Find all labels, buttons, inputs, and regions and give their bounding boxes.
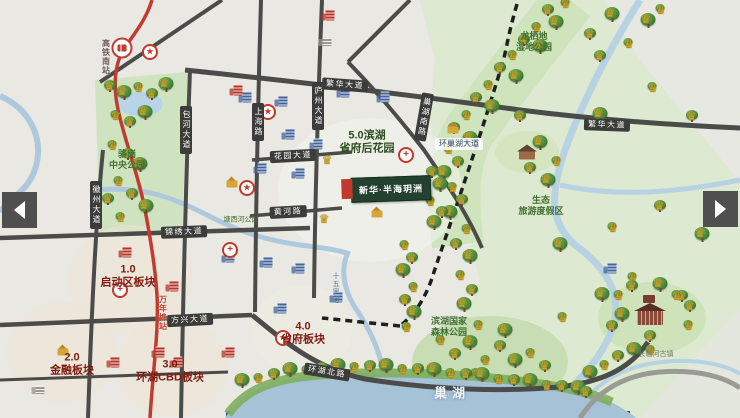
tree-icon — [407, 305, 422, 320]
tree-icon — [462, 224, 471, 234]
tree-icon — [653, 277, 668, 292]
tree-icon — [686, 110, 698, 122]
school-poi-icon — [372, 211, 383, 218]
road-label: 花园大道 — [270, 149, 317, 163]
tree-icon — [446, 368, 455, 378]
house-poi-icon — [519, 151, 535, 160]
tree-icon — [450, 238, 462, 250]
blue-poi-icon — [608, 263, 617, 274]
zone-label: 2.0金融板块 — [50, 351, 94, 376]
star-poi-icon — [239, 180, 255, 196]
tree-icon — [283, 362, 298, 377]
road-label: 黄河路 — [269, 205, 306, 219]
tree-icon — [600, 360, 609, 370]
blue-poi-icon — [296, 263, 305, 274]
tree-icon — [481, 355, 490, 365]
tree-icon — [580, 386, 592, 398]
crown-poi-icon — [322, 154, 333, 166]
tree-icon — [463, 249, 478, 264]
school-poi-icon — [448, 127, 459, 134]
road-label: 繁华大道 — [584, 118, 630, 132]
tree-icon — [583, 365, 598, 380]
tree-icon — [350, 362, 359, 372]
tree-icon — [656, 4, 665, 14]
blue-poi-icon — [314, 139, 323, 150]
red-poi-icon — [226, 347, 235, 358]
blue-poi-icon — [381, 92, 390, 103]
blue-poi-icon — [296, 168, 305, 179]
tree-icon — [624, 38, 633, 48]
tree-icon — [102, 193, 114, 205]
tree-icon — [556, 380, 568, 392]
tree-icon — [159, 77, 174, 92]
blue-poi-icon — [243, 92, 252, 103]
tree-icon — [539, 360, 551, 372]
tree-icon — [509, 69, 524, 84]
metro-stop-label: 万年埠站 — [158, 295, 169, 331]
tree-icon — [494, 374, 503, 384]
tree-icon — [146, 88, 158, 100]
cross-poi-icon — [222, 242, 238, 258]
river-shiwuli — [344, 252, 382, 366]
tree-icon — [124, 116, 136, 128]
tree-icon — [474, 320, 483, 330]
zone-label: 5.0滨湖省府后花园 — [340, 129, 395, 154]
tree-icon — [470, 92, 482, 104]
tree-icon — [116, 212, 125, 222]
park-label: 滨湖国家森林公园 — [431, 316, 467, 339]
tree-icon — [648, 82, 657, 92]
blue-poi-icon — [264, 257, 273, 268]
tree-icon — [475, 367, 490, 382]
tree-icon — [456, 270, 465, 280]
zone-label: 4.0省府板块 — [281, 320, 325, 345]
metro-station-icon — [112, 38, 133, 59]
zone-label: 1.0启动区板块 — [101, 263, 156, 288]
tree-icon — [508, 374, 520, 386]
tree-icon — [364, 360, 376, 372]
tree-icon — [139, 199, 154, 214]
blue-poi-icon — [258, 163, 267, 174]
blue-poi-icon — [278, 303, 287, 314]
tree-icon — [398, 364, 407, 374]
gray-poi-icon — [36, 386, 45, 394]
blue-poi-icon — [286, 129, 295, 140]
tree-icon — [684, 320, 693, 330]
tree-icon — [561, 0, 570, 8]
tree-icon — [542, 380, 551, 390]
tree-icon — [549, 15, 564, 30]
river-label: 十五里河 — [330, 272, 340, 304]
gray-poi-icon — [323, 38, 332, 46]
tree-icon — [379, 358, 394, 373]
tree-icon — [400, 240, 409, 250]
tree-icon — [552, 156, 561, 166]
tree-icon — [615, 307, 630, 322]
project-name-board: 新华·半海玥洲 — [351, 175, 432, 203]
tree-icon — [138, 105, 153, 120]
tree-icon — [449, 348, 461, 360]
tree-icon — [484, 80, 493, 90]
tree-icon — [695, 227, 710, 242]
road-label: 庐州大道 — [312, 82, 324, 130]
road-label: 锦绣大道 — [161, 225, 207, 239]
tree-icon — [402, 322, 411, 332]
red-poi-icon — [156, 347, 165, 358]
tree-icon — [595, 287, 610, 302]
tree-icon — [672, 290, 681, 300]
red-poi-icon — [234, 85, 243, 96]
red-poi-icon — [170, 281, 179, 292]
tree-icon — [523, 373, 538, 388]
tree-icon — [456, 194, 468, 206]
tree-icon — [514, 110, 526, 122]
tree-icon — [462, 110, 471, 120]
temple-poi-icon — [637, 311, 663, 325]
road-label: 环巢湖大道 — [435, 138, 483, 150]
tree-icon — [494, 62, 506, 74]
cross-poi-icon — [398, 147, 414, 163]
tree-icon — [235, 373, 250, 388]
road-label: 方兴大道 — [167, 313, 214, 327]
tree-icon — [654, 200, 666, 212]
tree-icon — [614, 290, 623, 300]
tree-icon — [448, 182, 457, 192]
crown-poi-icon — [319, 213, 330, 225]
tree-icon — [485, 99, 500, 114]
tree-icon — [612, 350, 624, 362]
red-poi-icon — [123, 247, 132, 258]
red-poi-icon — [326, 10, 335, 21]
tree-icon — [409, 282, 418, 292]
tree-icon — [558, 312, 567, 322]
lake-label: 巢湖 — [434, 383, 470, 402]
right-arrow-icon — [715, 200, 726, 218]
park-label: 生态旅游度假区 — [518, 195, 563, 218]
tree-icon — [114, 176, 123, 186]
tree-icon — [541, 173, 556, 188]
tree-icon — [427, 215, 442, 230]
tree-icon — [460, 368, 472, 380]
tree-icon — [524, 162, 536, 174]
tree-icon — [553, 237, 568, 252]
tree-icon — [584, 28, 596, 40]
project-logo-flag — [341, 179, 353, 199]
red-poi-icon — [111, 357, 120, 368]
rail-station-label: 高铁南站 — [101, 39, 112, 75]
school-poi-icon — [227, 181, 238, 188]
tree-icon — [508, 353, 523, 368]
tree-icon — [466, 284, 478, 296]
next-image-button[interactable] — [703, 191, 738, 227]
tree-icon — [526, 348, 535, 358]
tree-icon — [594, 50, 606, 62]
park-label: 骆岗中央公园 — [109, 149, 145, 172]
prev-image-button[interactable] — [2, 192, 37, 228]
tree-icon — [254, 373, 263, 383]
tree-icon — [134, 82, 143, 92]
zone-label: 3.0环湖CBD板块 — [136, 358, 204, 383]
tree-icon — [498, 323, 513, 338]
tree-icon — [104, 80, 116, 92]
tree-icon — [452, 156, 464, 168]
tree-icon — [608, 222, 617, 232]
road-label: 上海路 — [252, 103, 264, 141]
landmark-label: 长临河古镇 — [639, 349, 674, 359]
tree-icon — [396, 263, 411, 278]
tree-icon — [111, 110, 120, 120]
tree-icon — [117, 85, 132, 100]
tree-icon — [433, 177, 448, 192]
blue-poi-icon — [279, 96, 288, 107]
tree-icon — [457, 297, 472, 312]
tree-icon — [641, 13, 656, 28]
park-label: 塘西河公园 — [224, 217, 259, 226]
tree-icon — [427, 362, 442, 377]
tree-icon — [126, 188, 138, 200]
tree-icon — [268, 368, 280, 380]
tree-icon — [684, 300, 696, 312]
road-label: 徽州大道 — [90, 181, 102, 229]
tree-icon — [494, 340, 506, 352]
tree-icon — [605, 7, 620, 22]
tree-icon — [644, 330, 656, 342]
park-label: 龙栖地湿地公园 — [516, 31, 552, 54]
tree-icon — [412, 363, 424, 375]
left-arrow-icon — [14, 201, 25, 219]
star-poi-icon — [142, 44, 158, 60]
road-label: 包河大道 — [180, 106, 192, 154]
location-map: 1.0启动区板块2.0金融板块3.0环湖CBD板块4.0省府板块5.0滨湖省府后… — [0, 0, 740, 418]
tree-icon — [626, 280, 638, 292]
